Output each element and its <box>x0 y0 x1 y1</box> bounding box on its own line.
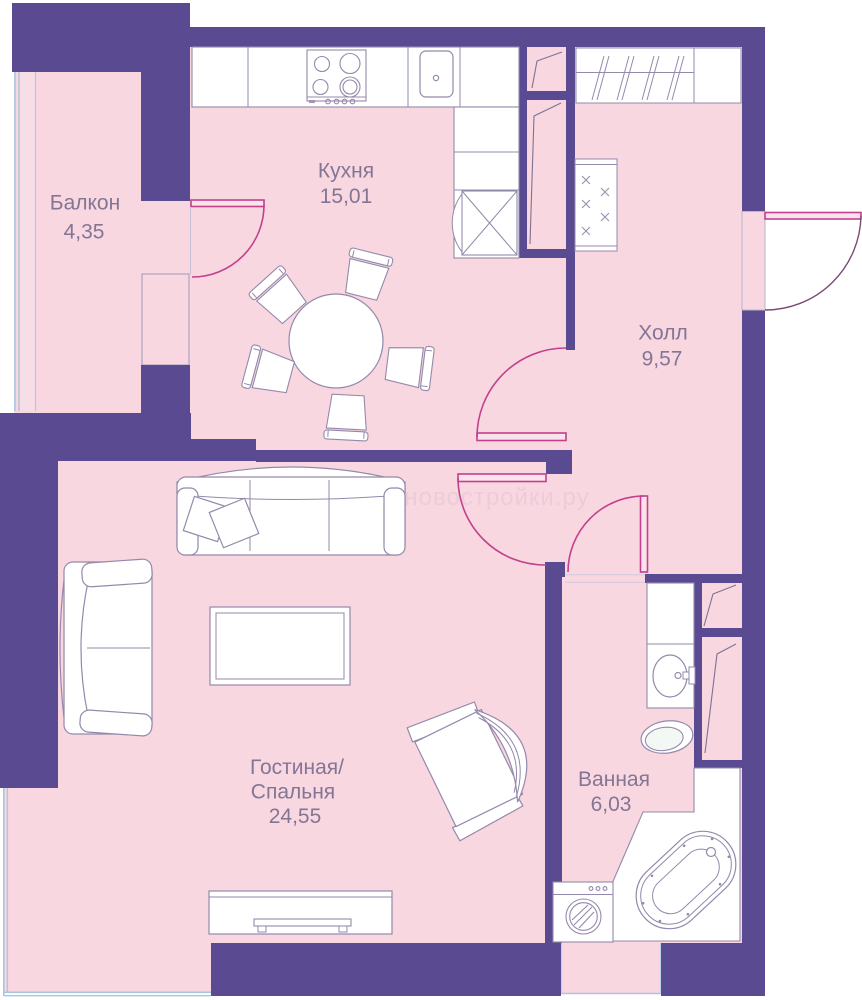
svg-text:15,01: 15,01 <box>320 185 373 208</box>
svg-text:Балкон: Балкон <box>50 192 120 215</box>
svg-text:6,03: 6,03 <box>591 793 632 816</box>
svg-text:4,35: 4,35 <box>64 221 105 244</box>
svg-text:новостройки.ру: новостройки.ру <box>404 484 589 511</box>
svg-text:24,55: 24,55 <box>269 805 322 828</box>
svg-text:Ванная: Ванная <box>578 768 650 791</box>
svg-text:Спальня: Спальня <box>251 781 335 804</box>
svg-text:Холл: Холл <box>638 322 688 345</box>
svg-text:Гостиная/: Гостиная/ <box>250 756 344 779</box>
svg-text:9,57: 9,57 <box>642 348 683 371</box>
svg-text:Кухня: Кухня <box>318 160 374 183</box>
